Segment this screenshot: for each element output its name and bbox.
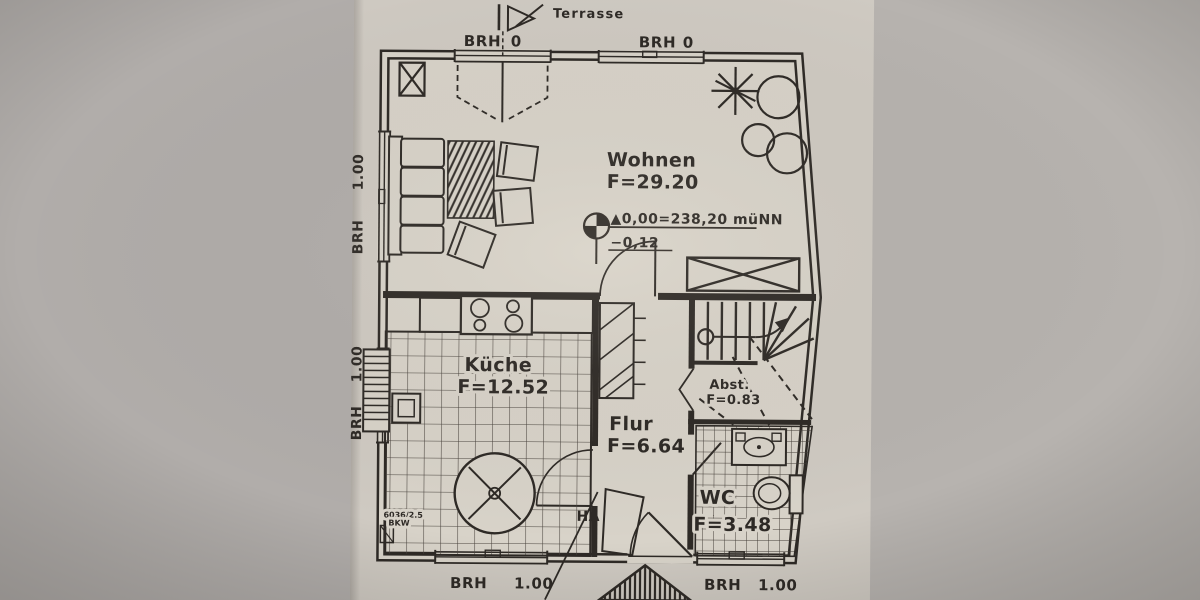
floor-plan-drawing: Terrasse Wohnen F=29.20 Küche F=12.52 Fl…	[0, 0, 1200, 600]
photo-vignette	[0, 0, 1200, 600]
scanned-floorplan-photo: Terrasse Wohnen F=29.20 Küche F=12.52 Fl…	[0, 0, 1200, 600]
